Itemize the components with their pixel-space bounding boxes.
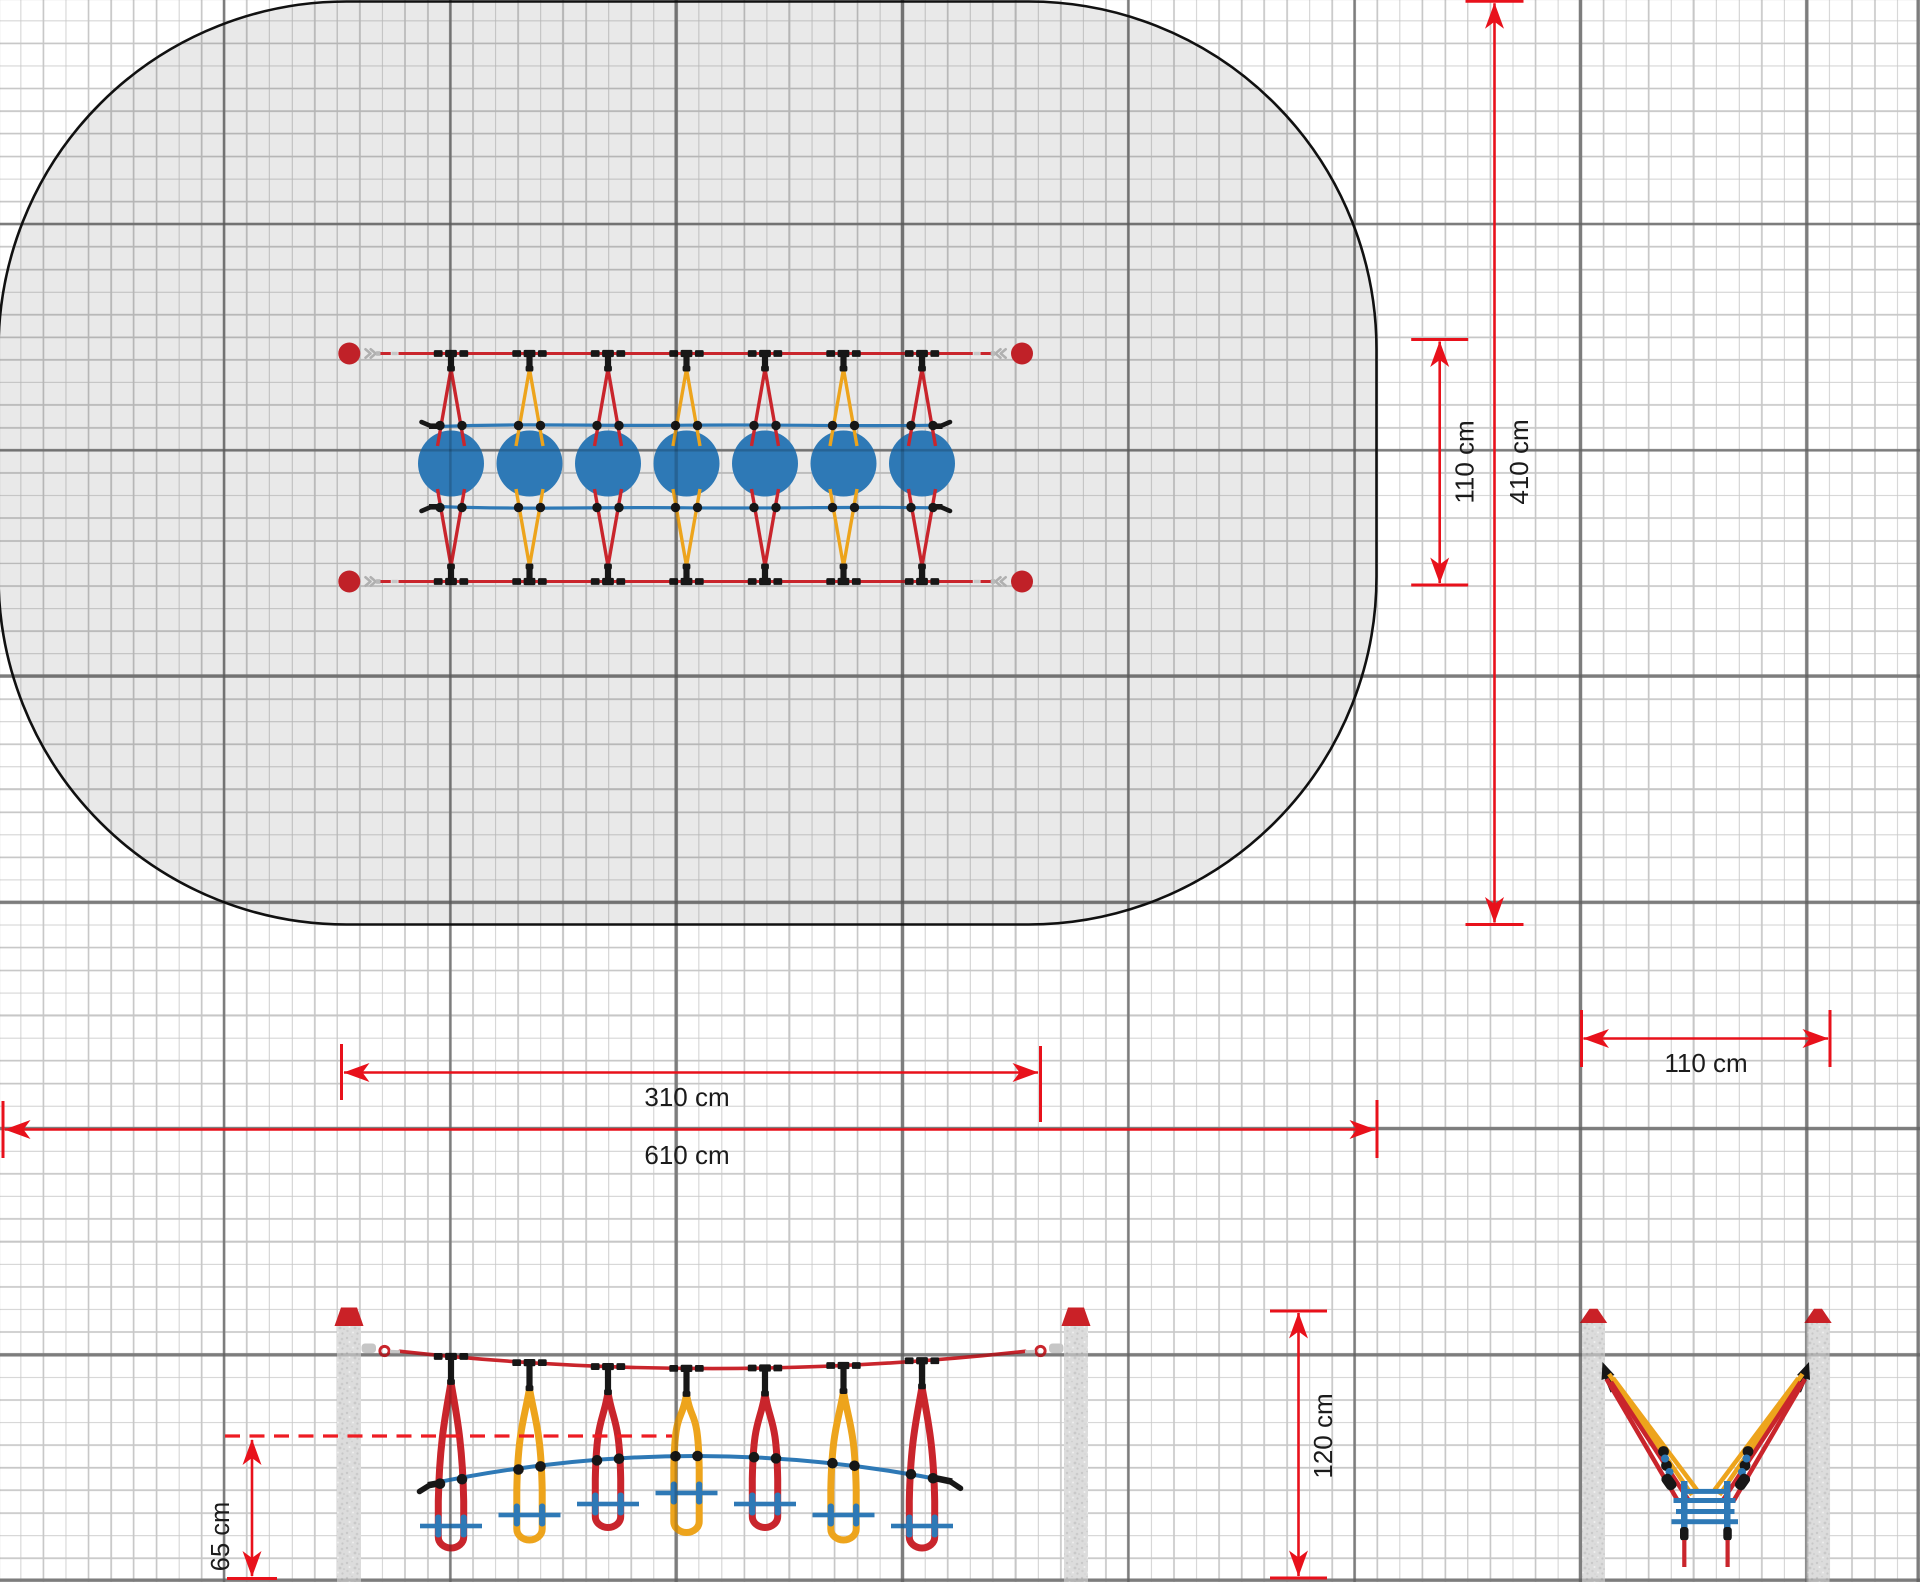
svg-text:110 cm: 110 cm	[1664, 1048, 1747, 1078]
svg-text:410 cm: 410 cm	[1504, 419, 1534, 504]
svg-text:310 cm: 310 cm	[644, 1082, 729, 1112]
svg-text:65 cm: 65 cm	[207, 1502, 235, 1571]
svg-text:120 cm: 120 cm	[1308, 1393, 1338, 1478]
svg-text:610 cm: 610 cm	[644, 1140, 729, 1170]
svg-text:110 cm: 110 cm	[1450, 420, 1480, 503]
